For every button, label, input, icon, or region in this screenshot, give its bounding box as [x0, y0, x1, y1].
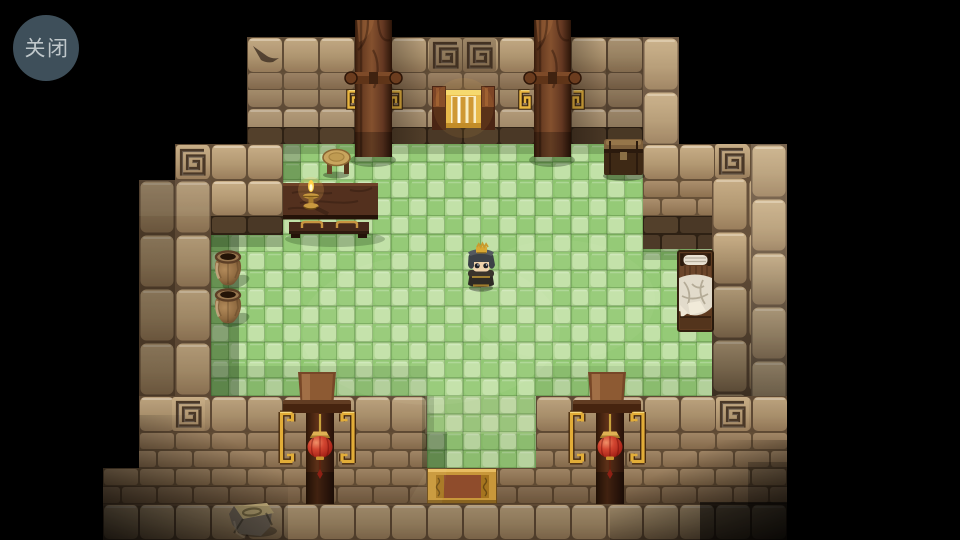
svg-text:关闭: 关闭 [25, 38, 70, 61]
